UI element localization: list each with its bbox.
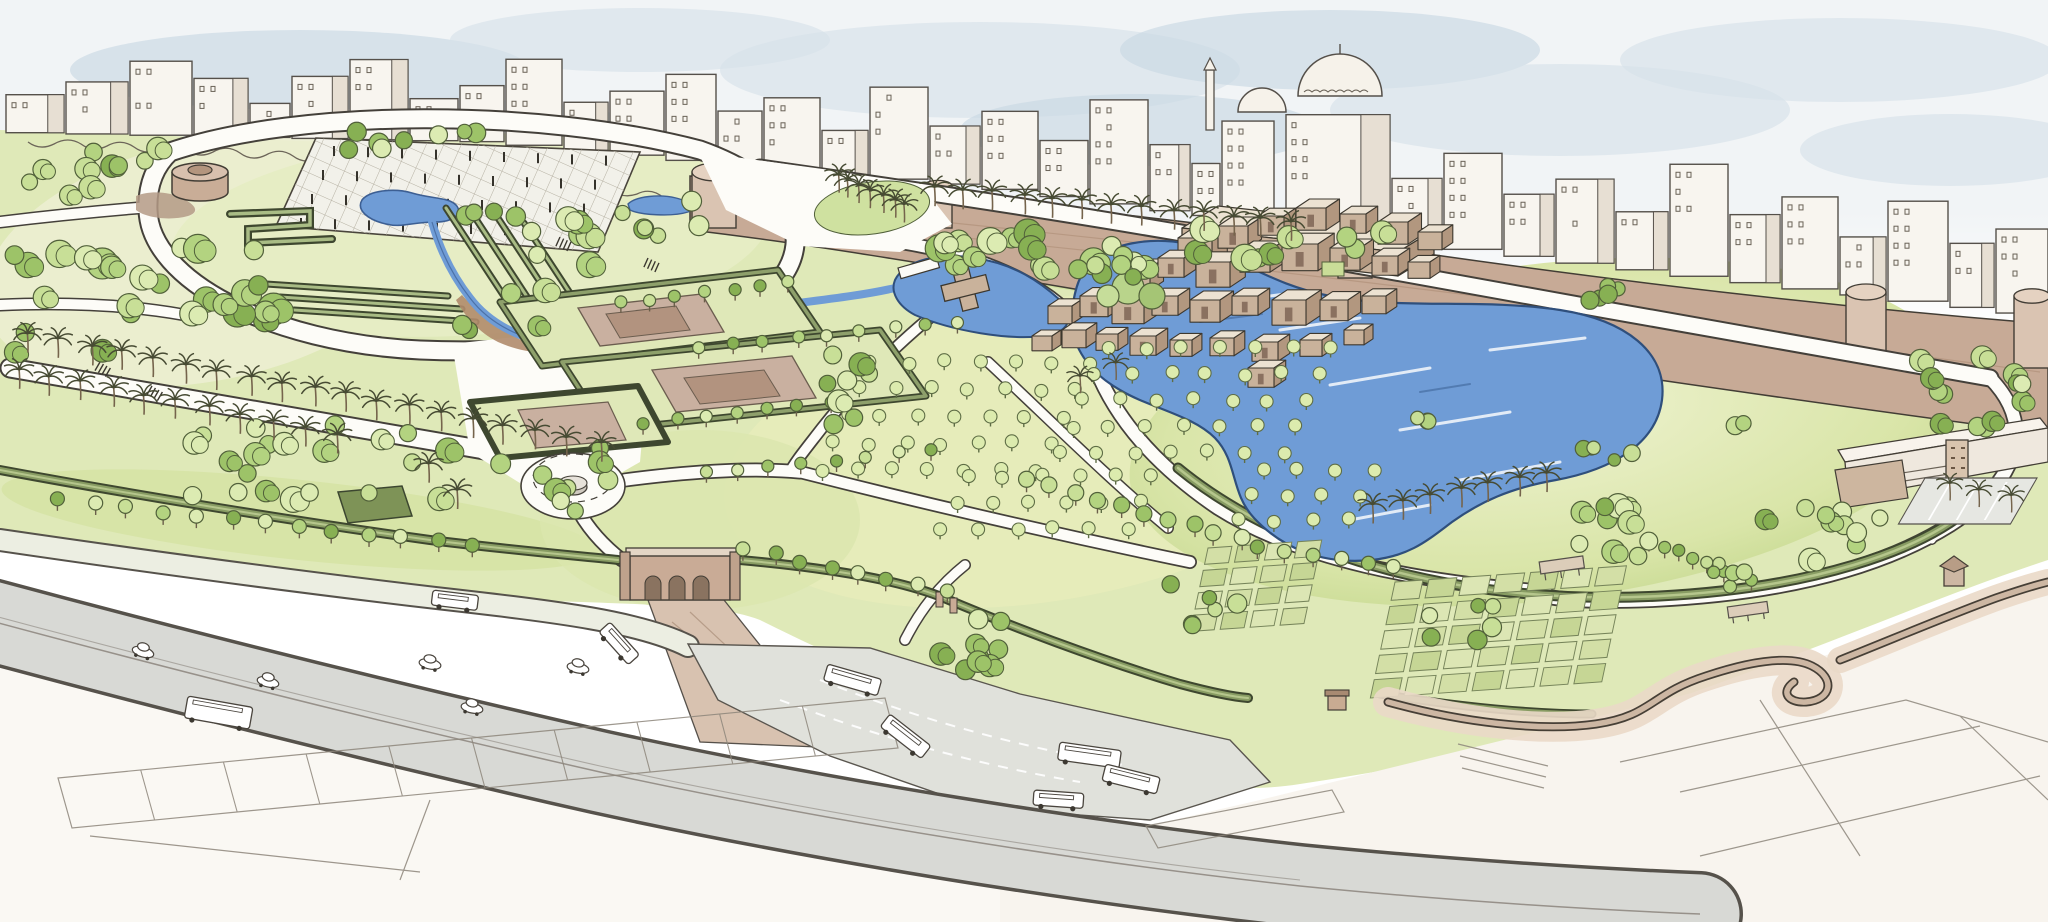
gate-arches — [645, 576, 709, 600]
drawing-canvas — [0, 0, 2048, 922]
minaret — [1206, 70, 1214, 130]
masterplan-illustration — [0, 0, 2048, 922]
kiosk — [1325, 690, 1349, 710]
building-tower — [1946, 440, 1968, 480]
car — [418, 653, 443, 673]
car — [566, 657, 591, 677]
